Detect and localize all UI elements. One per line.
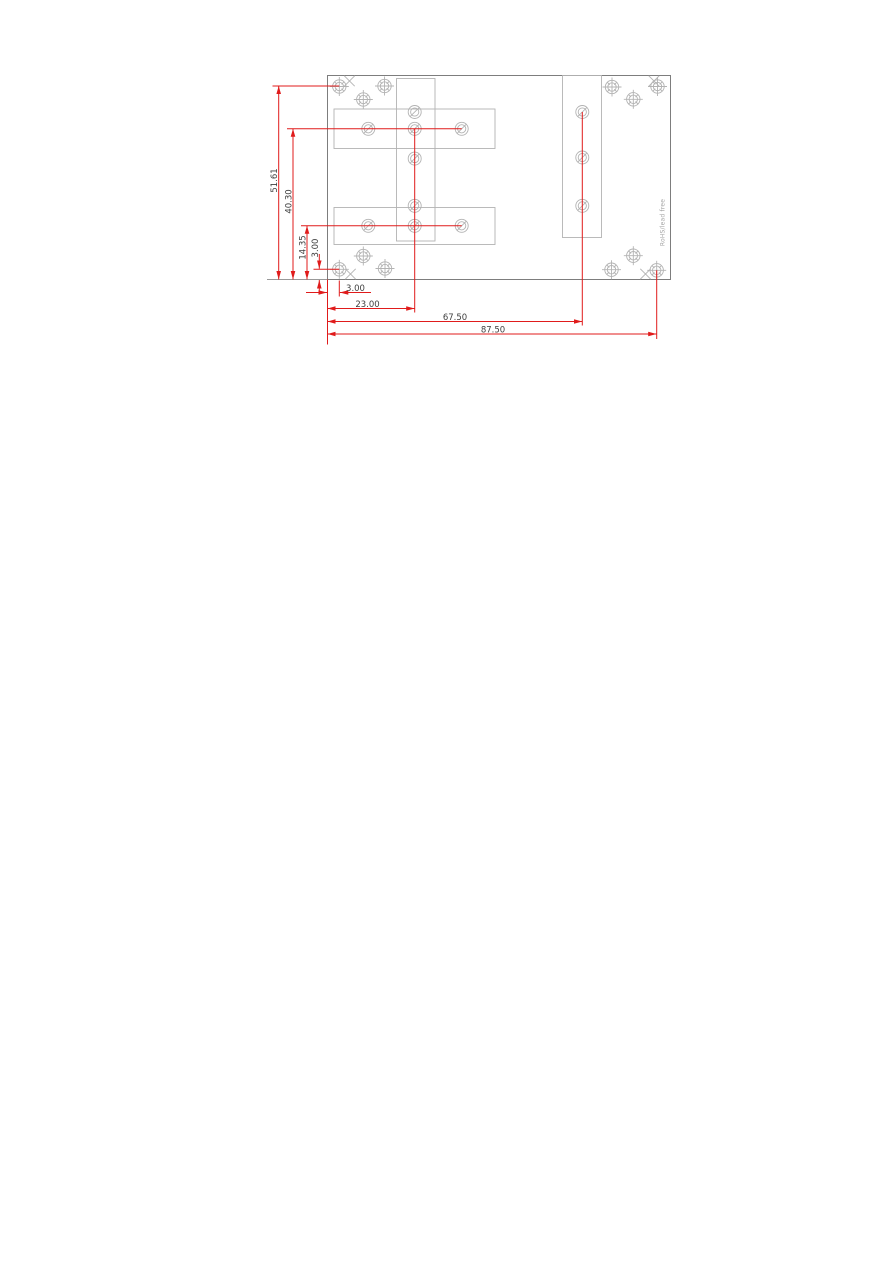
dimension-drawing: RoHS/lead free 51.61 40.30 14.35 3.00 3.… <box>0 0 893 1263</box>
page: RoHS/lead free 51.61 40.30 14.35 3.00 3.… <box>0 0 893 1263</box>
board-outline <box>328 76 671 280</box>
dim-label-40-30: 40.30 <box>285 189 295 213</box>
dim-label-87-50: 87.50 <box>481 326 505 336</box>
dim-label-3-00-vertical: 3.00 <box>311 239 321 258</box>
dim-label-14-35: 14.35 <box>299 235 309 259</box>
dim-label-3-00-horizontal: 3.00 <box>346 284 365 294</box>
dim-label-23-00: 23.00 <box>355 300 379 310</box>
dim-label-67-50: 67.50 <box>443 313 467 323</box>
rohs-note: RoHS/lead free <box>660 199 667 246</box>
dim-label-51-61: 51.61 <box>270 168 280 192</box>
